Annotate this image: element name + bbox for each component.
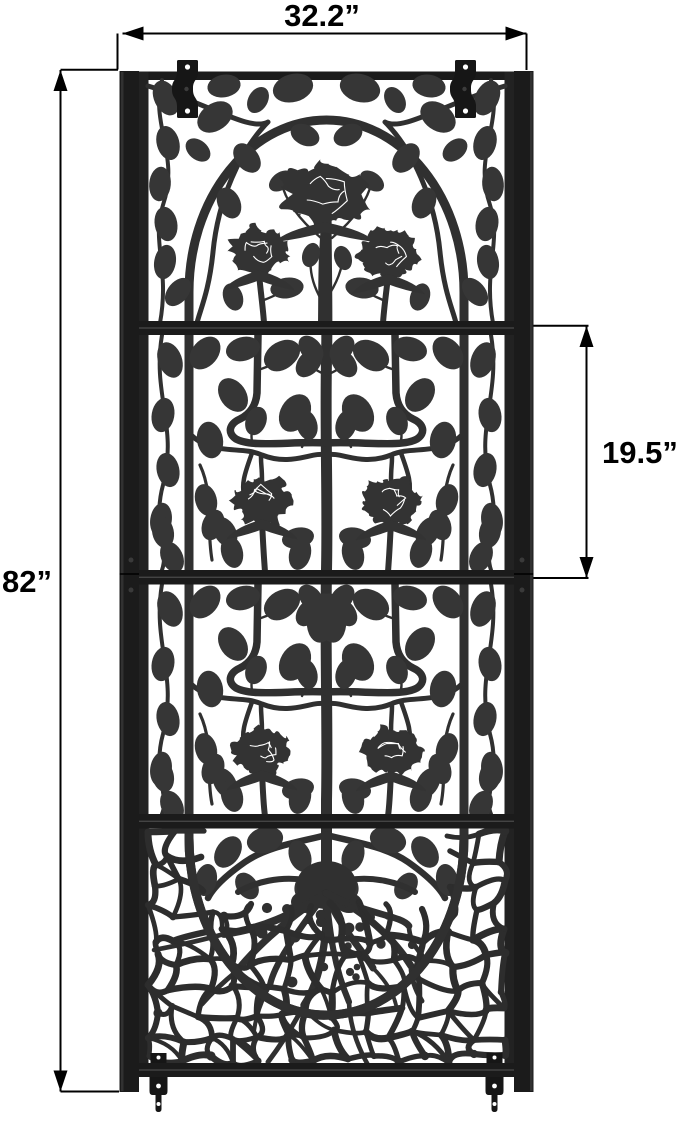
svg-text:19.5”: 19.5” [602, 435, 678, 470]
svg-text:82”: 82” [2, 564, 52, 599]
svg-text:32.2”: 32.2” [284, 0, 360, 33]
